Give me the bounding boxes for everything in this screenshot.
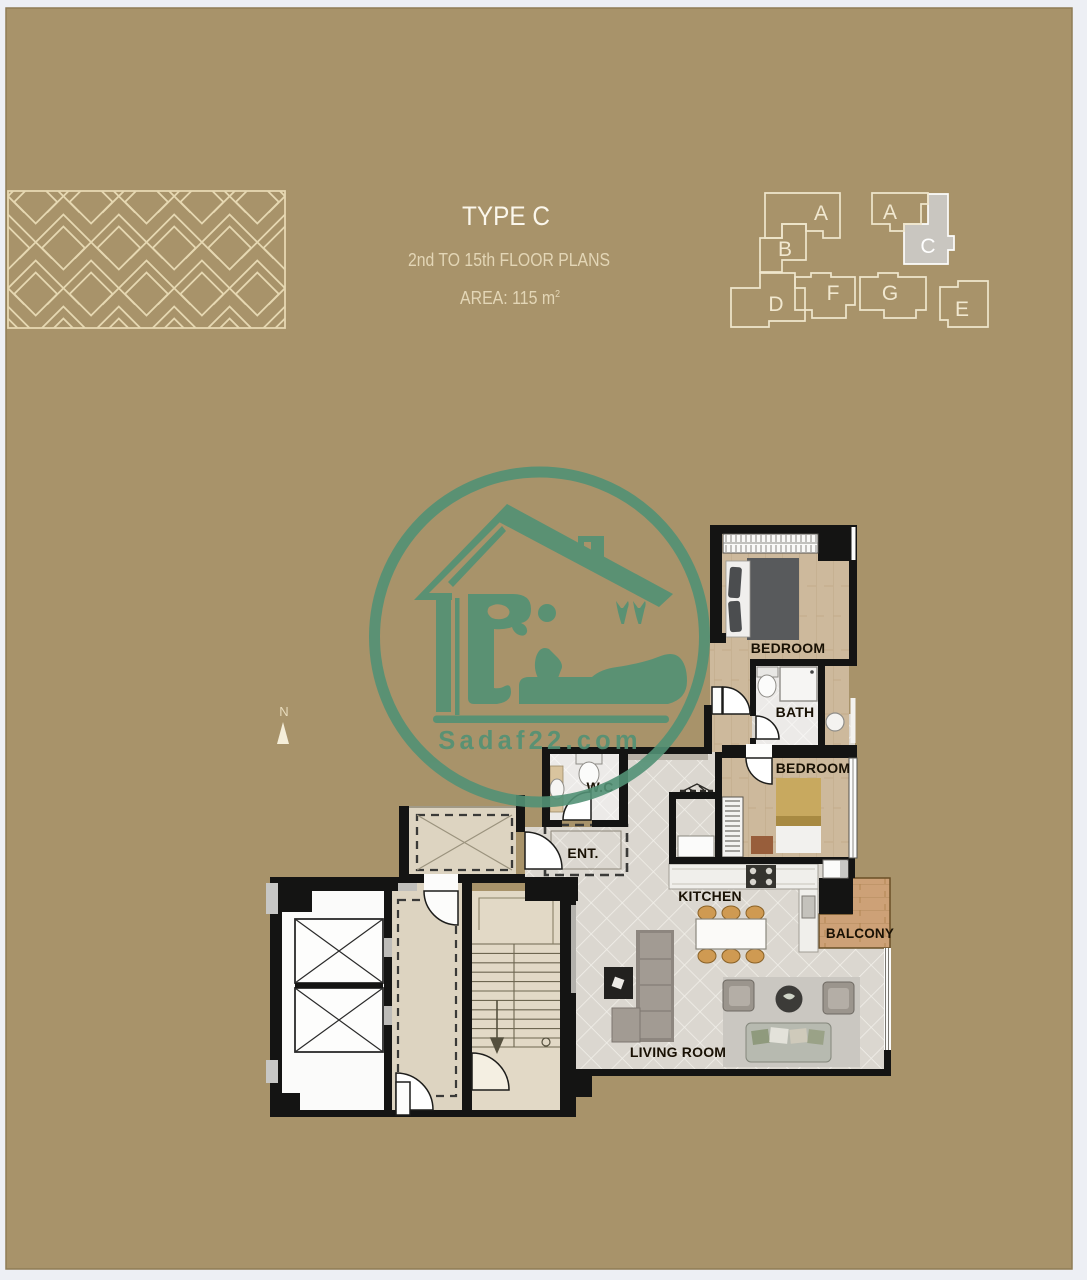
svg-text:BALCONY: BALCONY <box>826 926 894 941</box>
svg-text:F: F <box>827 282 840 305</box>
svg-text:B: B <box>778 238 792 261</box>
svg-text:2nd TO 15th FLOOR PLANS: 2nd TO 15th FLOOR PLANS <box>408 250 610 270</box>
svg-text:E: E <box>955 298 969 321</box>
svg-text:BEDROOM: BEDROOM <box>776 760 851 776</box>
svg-text:C: C <box>920 235 935 258</box>
svg-text:AREA: 115 m2: AREA: 115 m2 <box>460 288 560 308</box>
svg-text:ENT.: ENT. <box>567 845 598 861</box>
svg-text:A: A <box>883 201 897 224</box>
svg-text:KITCHEN: KITCHEN <box>678 888 742 904</box>
svg-text:D: D <box>768 293 783 316</box>
svg-text:LIVING ROOM: LIVING ROOM <box>630 1044 726 1060</box>
svg-text:A: A <box>814 202 828 225</box>
svg-text:BATH: BATH <box>776 704 815 720</box>
svg-text:Sadaf22.com: Sadaf22.com <box>438 727 642 755</box>
svg-text:N: N <box>279 704 288 719</box>
svg-text:G: G <box>882 282 898 305</box>
svg-text:TYPE C: TYPE C <box>462 201 550 231</box>
svg-text:BEDROOM: BEDROOM <box>751 640 826 656</box>
